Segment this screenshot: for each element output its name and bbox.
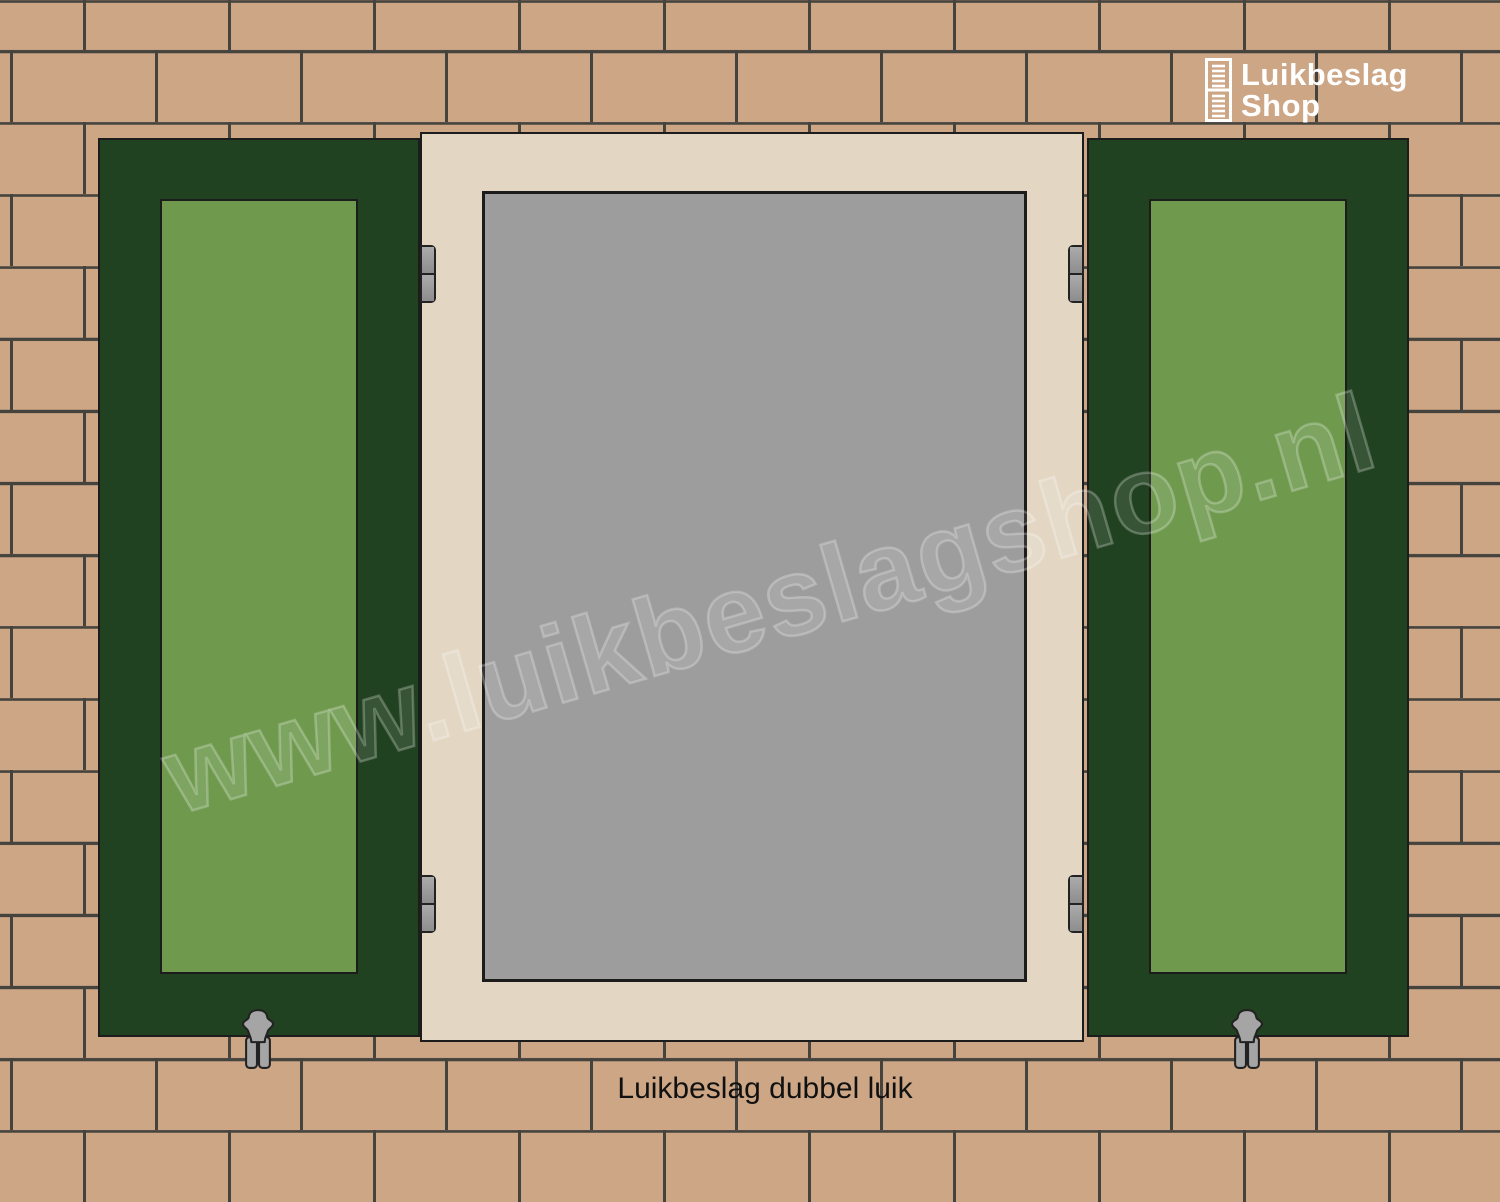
shutters-icon <box>1205 58 1232 122</box>
right-shutter-panel <box>1149 199 1347 974</box>
brand-name: Luikbeslag Shop <box>1241 59 1408 121</box>
shutter-holder-right-icon <box>1225 1008 1269 1070</box>
brand-logo: Luikbeslag Shop <box>1205 58 1408 122</box>
left-shutter-panel <box>160 199 358 974</box>
hinge-top-right-icon <box>1068 245 1084 303</box>
brand-name-line2: Shop <box>1241 90 1408 121</box>
hinge-bottom-left-icon <box>420 875 436 933</box>
shutter-holder-left-icon <box>236 1008 280 1070</box>
hinge-bottom-right-icon <box>1068 875 1084 933</box>
window-glass <box>482 191 1027 982</box>
window-frame <box>420 132 1084 1042</box>
illustration-canvas: www.luikbeslagshop.nl Luikbeslag Shop <box>0 0 1500 1202</box>
hinge-top-left-icon <box>420 245 436 303</box>
caption-text: Luikbeslag dubbel luik <box>0 1072 1500 1106</box>
brand-name-line1: Luikbeslag <box>1241 59 1408 90</box>
right-shutter <box>1087 138 1409 1037</box>
left-shutter <box>98 138 420 1037</box>
